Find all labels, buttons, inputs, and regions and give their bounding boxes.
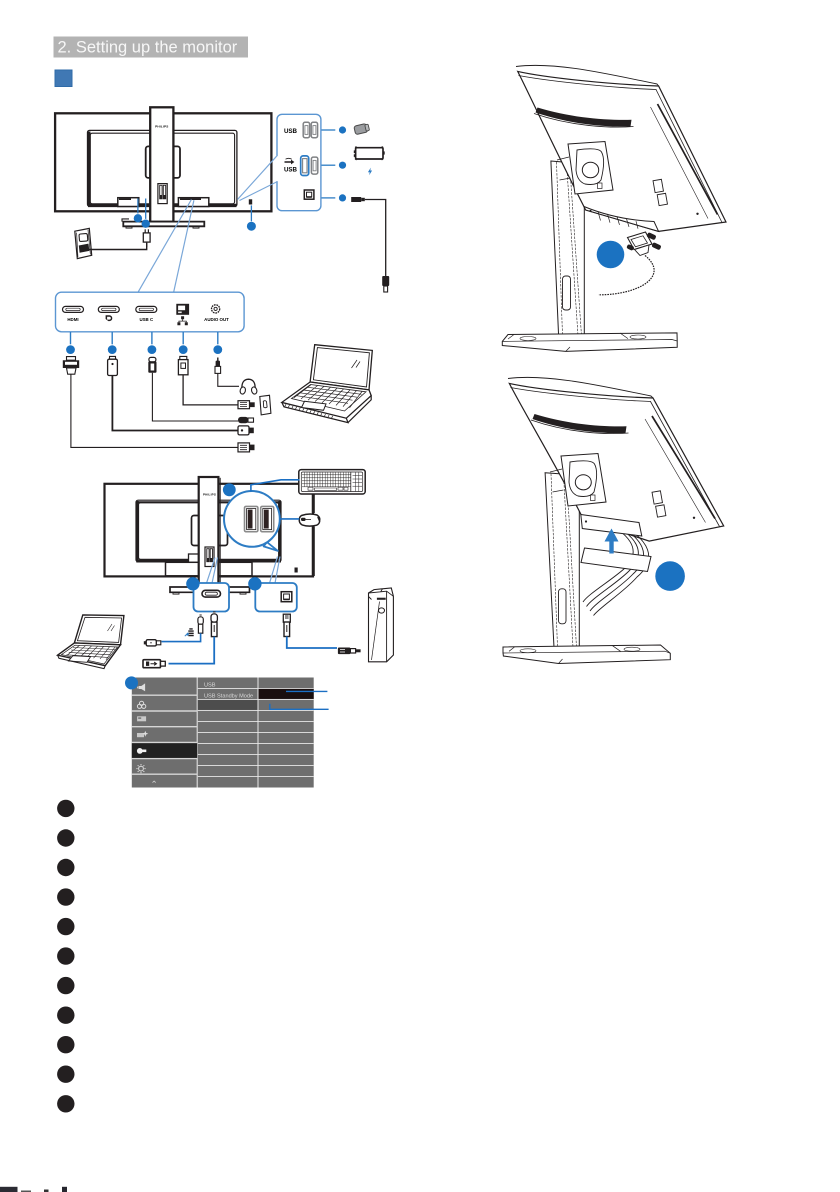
svg-text:USB: USB xyxy=(284,128,298,135)
svg-text:2. Setting up the monitor: 2. Setting up the monitor xyxy=(58,38,238,56)
svg-text:USB: USB xyxy=(284,167,298,174)
svg-text:USB Standby Mode: USB Standby Mode xyxy=(204,693,253,699)
svg-text:AUDIO OUT: AUDIO OUT xyxy=(204,317,229,322)
svg-text:HDMI: HDMI xyxy=(67,317,78,322)
svg-text:PHILIPS: PHILIPS xyxy=(203,493,216,497)
svg-text:USB: USB xyxy=(204,682,216,688)
svg-text:PHILIPS: PHILIPS xyxy=(155,125,168,129)
svg-text:USB C: USB C xyxy=(139,317,153,322)
